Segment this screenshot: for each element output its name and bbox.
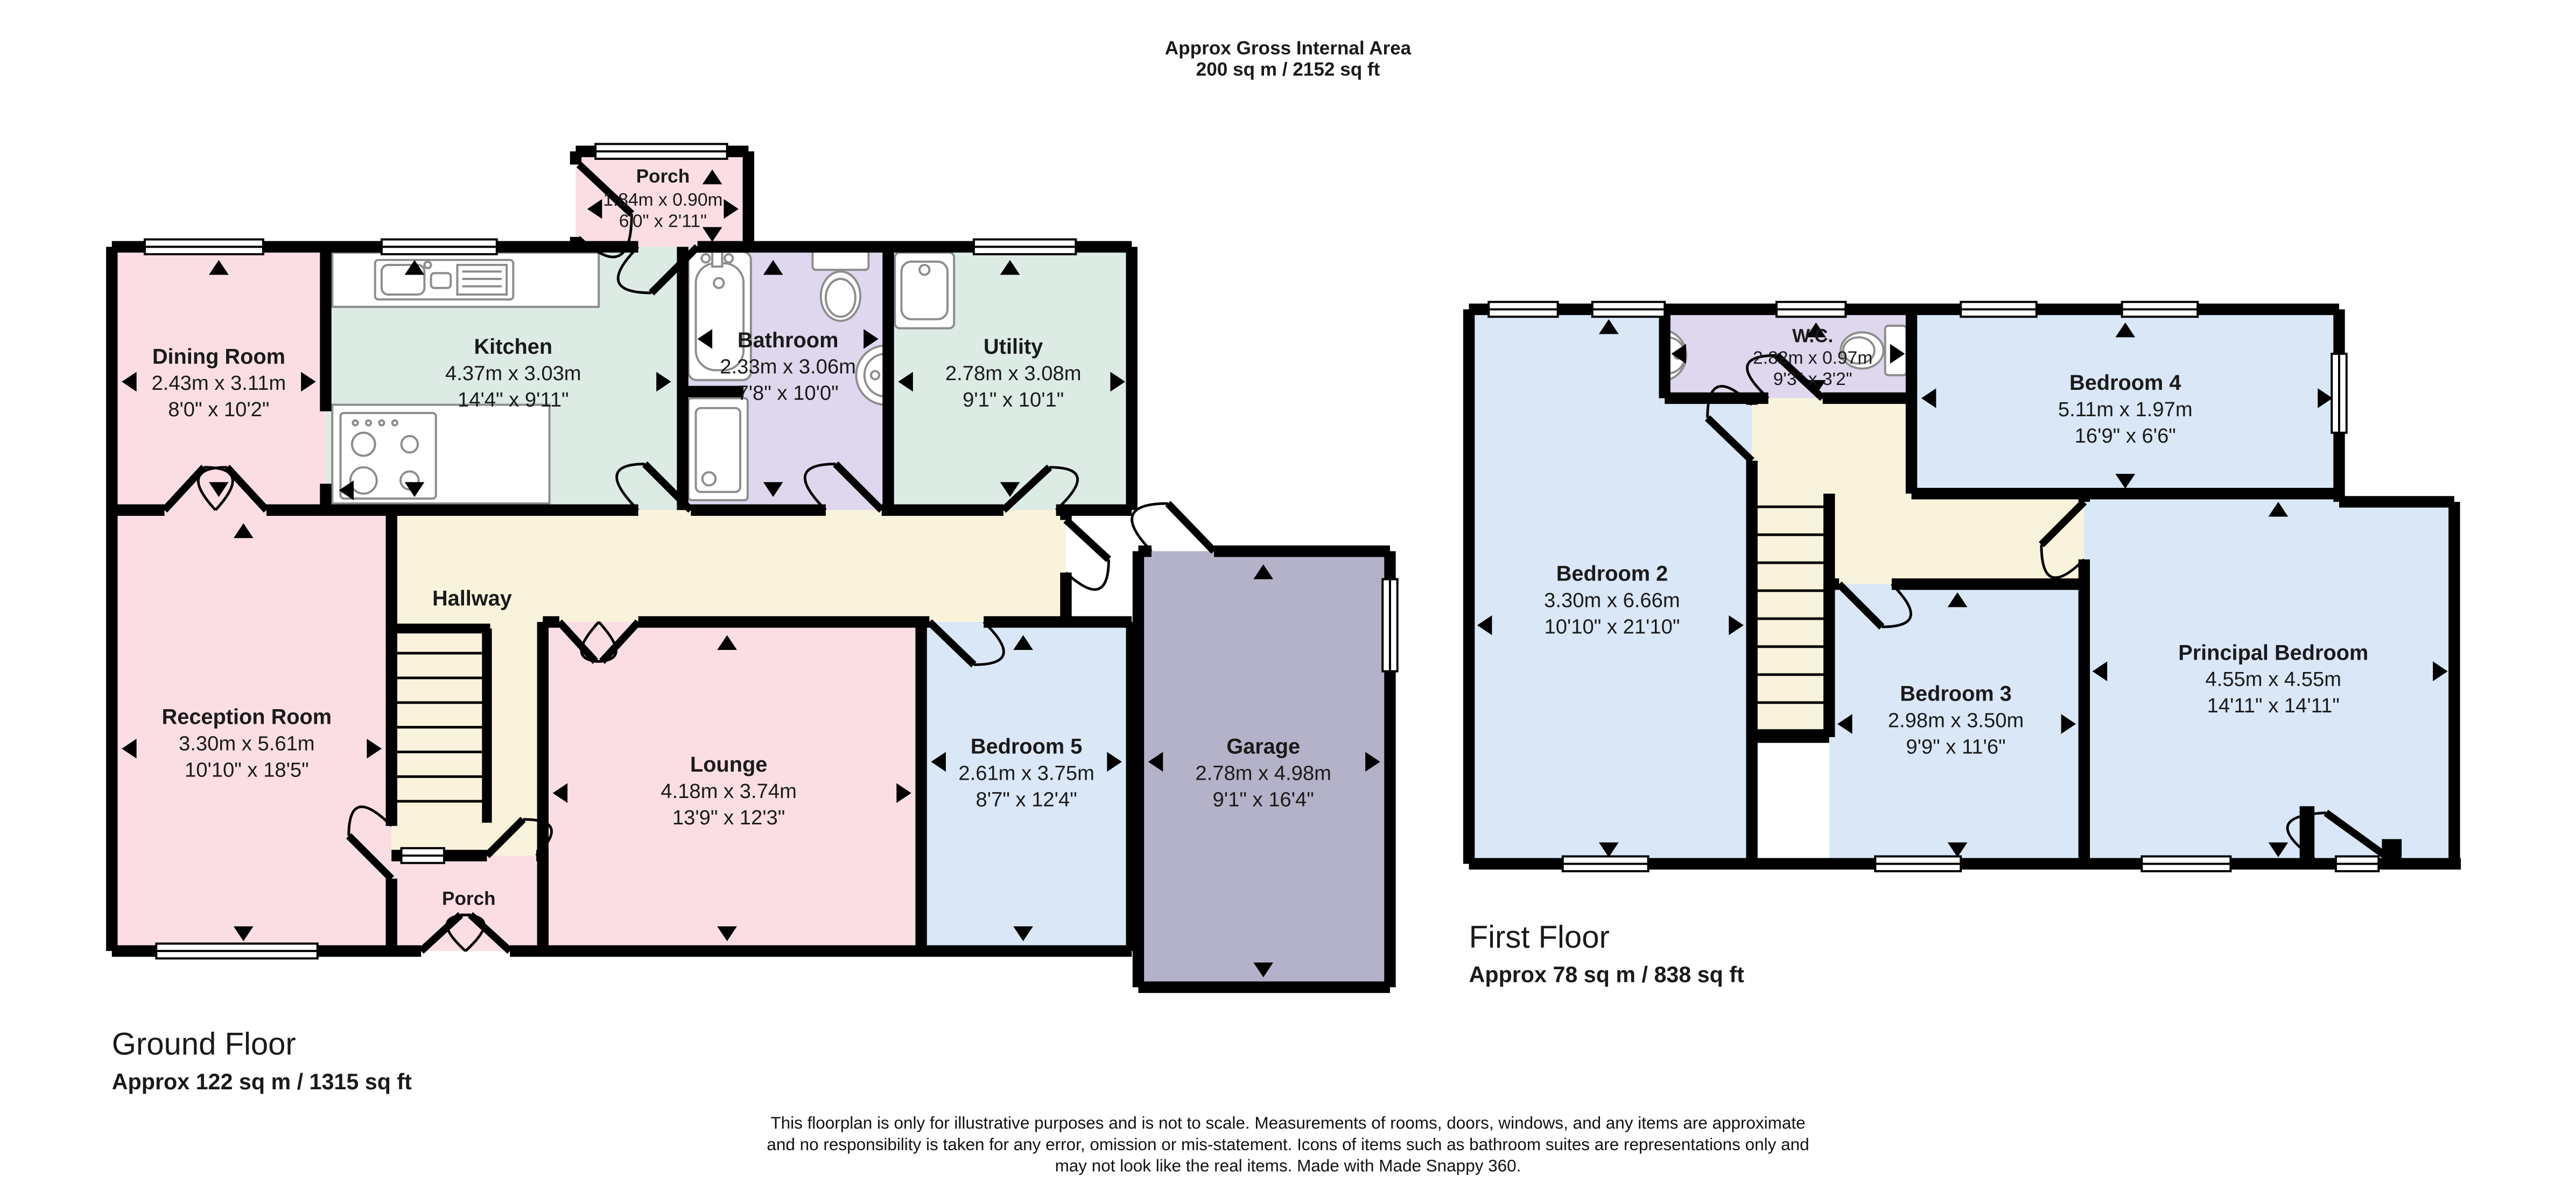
floorplan-canvas: Approx Gross Internal Area 200 sq m / 21… [0,0,2576,1197]
label-porch-top: Porch [636,166,690,187]
label-bedroom-2: Bedroom 2 [1556,562,1668,586]
first-floor-title: First Floor [1469,920,1610,955]
window [1489,302,1557,317]
window [2142,856,2230,871]
window [1875,856,1961,871]
svg-text:9'1" x 10'1": 9'1" x 10'1" [963,388,1064,411]
door-back [1066,520,1108,590]
window [1777,302,1845,317]
window [1563,856,1648,871]
utility-sink-icon [895,253,954,328]
window [1592,302,1665,317]
window [595,144,727,159]
first-floor-area: Approx 78 sq m / 838 sq ft [1469,962,1744,987]
svg-text:9'1" x 16'4": 9'1" x 16'4" [1213,788,1314,811]
label-bedroom-4: Bedroom 4 [2069,371,2181,395]
shower-icon [689,398,748,500]
kitchen-sink-icon [375,260,514,299]
disclaimer-line1: This floorplan is only for illustrative … [770,1114,1805,1132]
svg-text:7'8" x 10'0": 7'8" x 10'0" [738,382,839,405]
label-wc: W.C. [1792,326,1833,347]
room-bedroom-5 [921,622,1132,951]
svg-text:4.37m x 3.03m: 4.37m x 3.03m [445,362,581,385]
window [2332,354,2347,433]
plan-title-line1: Approx Gross Internal Area [1165,38,1412,59]
label-porch-bottom: Porch [442,888,496,909]
svg-text:2.61m x 3.75m: 2.61m x 3.75m [958,761,1094,785]
window [1382,579,1398,671]
label-hallway: Hallway [432,586,512,610]
label-dining: Dining Room [152,345,285,368]
label-lounge: Lounge [690,753,767,776]
svg-text:16'9" x 6'6": 16'9" x 6'6" [2075,424,2176,447]
ground-floor-area: Approx 122 sq m / 1315 sq ft [112,1069,412,1094]
ground-floor-title: Ground Floor [112,1027,296,1062]
svg-text:9'3" x 3'2": 9'3" x 3'2" [1773,369,1852,389]
svg-text:3.30m x 5.61m: 3.30m x 5.61m [179,732,315,755]
disclaimer-line2: and no responsibility is taken for any e… [767,1135,1809,1154]
label-bedroom-5: Bedroom 5 [971,734,1082,758]
label-garage: Garage [1226,734,1300,758]
disclaimer-line3: may not look like the real items. Made w… [1055,1157,1521,1175]
svg-text:2.78m x 4.98m: 2.78m x 4.98m [1195,761,1331,785]
svg-text:6'0" x 2'11": 6'0" x 2'11" [619,212,707,232]
svg-text:8'7" x 12'4": 8'7" x 12'4" [976,788,1077,811]
window [974,240,1076,255]
svg-text:4.18m x 3.74m: 4.18m x 3.74m [661,780,797,803]
plan-title-line2: 200 sq m / 2152 sq ft [1196,59,1380,80]
window [2122,302,2198,317]
label-bathroom: Bathroom [738,328,839,352]
svg-text:13'9" x 12'3": 13'9" x 12'3" [672,806,785,829]
svg-text:2.33m x 3.06m: 2.33m x 3.06m [720,355,856,379]
window [402,848,444,863]
label-bedroom-3: Bedroom 3 [1900,682,2011,706]
svg-text:5.11m x 1.97m: 5.11m x 1.97m [2058,398,2193,421]
label-kitchen: Kitchen [474,335,553,359]
svg-text:4.55m x 4.55m: 4.55m x 4.55m [2205,668,2341,691]
door-garage [1132,503,1214,551]
svg-text:1.84m x 0.90m: 1.84m x 0.90m [603,190,722,210]
svg-text:2.78m x 3.08m: 2.78m x 3.08m [945,362,1082,385]
label-reception: Reception Room [162,705,332,729]
svg-text:2.43m x 3.11m: 2.43m x 3.11m [152,372,286,395]
window [145,240,263,255]
svg-text:14'4" x 9'11": 14'4" x 9'11" [458,388,569,411]
svg-text:10'10" x 18'5": 10'10" x 18'5" [185,758,309,781]
label-utility: Utility [984,335,1043,359]
svg-text:10'10" x 21'10": 10'10" x 21'10" [1544,615,1680,638]
label-principal: Principal Bedroom [2178,641,2368,664]
svg-text:14'11" x 14'11": 14'11" x 14'11" [2207,694,2340,717]
window [1961,302,2037,317]
svg-text:2.98m x 3.50m: 2.98m x 3.50m [1888,709,2024,732]
window [2336,856,2378,871]
svg-text:8'0" x 10'2": 8'0" x 10'2" [168,398,269,421]
window [382,240,497,255]
svg-text:9'9" x 11'6": 9'9" x 11'6" [1906,735,2005,758]
window [156,943,317,958]
svg-text:3.30m x 6.66m: 3.30m x 6.66m [1544,589,1680,612]
room-reception [112,510,391,951]
svg-text:2.82m x 0.97m: 2.82m x 0.97m [1753,348,1872,368]
